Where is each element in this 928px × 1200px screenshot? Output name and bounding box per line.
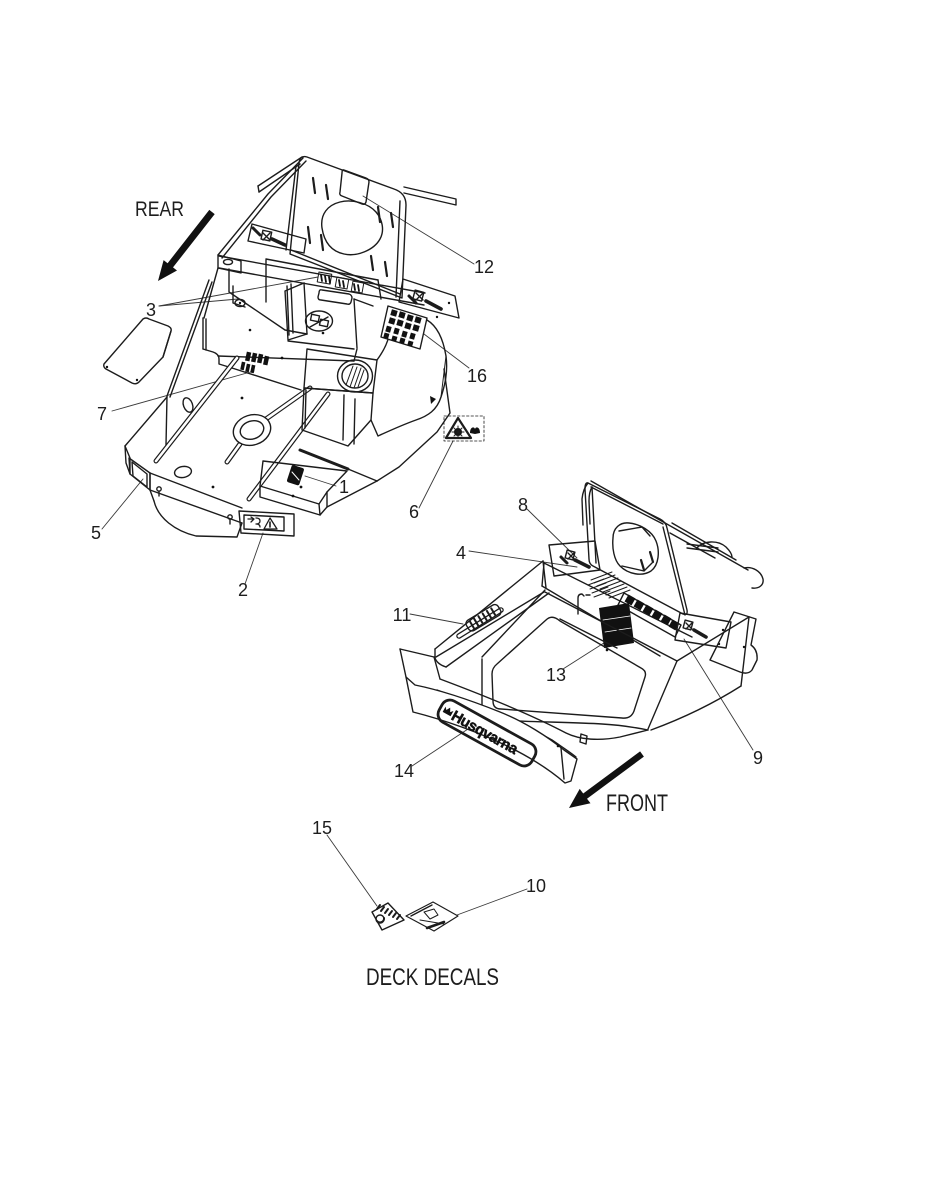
svg-text:16: 16 — [467, 366, 487, 386]
svg-text:4: 4 — [456, 543, 466, 563]
svg-text:14: 14 — [394, 761, 414, 781]
svg-text:5: 5 — [91, 523, 101, 543]
svg-text:6: 6 — [409, 502, 419, 522]
svg-text:12: 12 — [474, 257, 494, 277]
svg-text:DECK DECALS: DECK DECALS — [366, 964, 499, 991]
svg-text:3: 3 — [146, 300, 156, 320]
svg-text:11: 11 — [393, 605, 412, 625]
svg-text:REAR: REAR — [135, 197, 184, 221]
svg-text:8: 8 — [518, 495, 528, 515]
svg-text:1: 1 — [339, 477, 349, 497]
svg-text:9: 9 — [753, 748, 763, 768]
svg-text:10: 10 — [526, 876, 546, 896]
svg-text:7: 7 — [97, 404, 107, 424]
svg-text:15: 15 — [312, 818, 332, 838]
svg-text:2: 2 — [238, 580, 248, 600]
svg-text:FRONT: FRONT — [606, 790, 668, 817]
svg-text:13: 13 — [546, 665, 566, 685]
